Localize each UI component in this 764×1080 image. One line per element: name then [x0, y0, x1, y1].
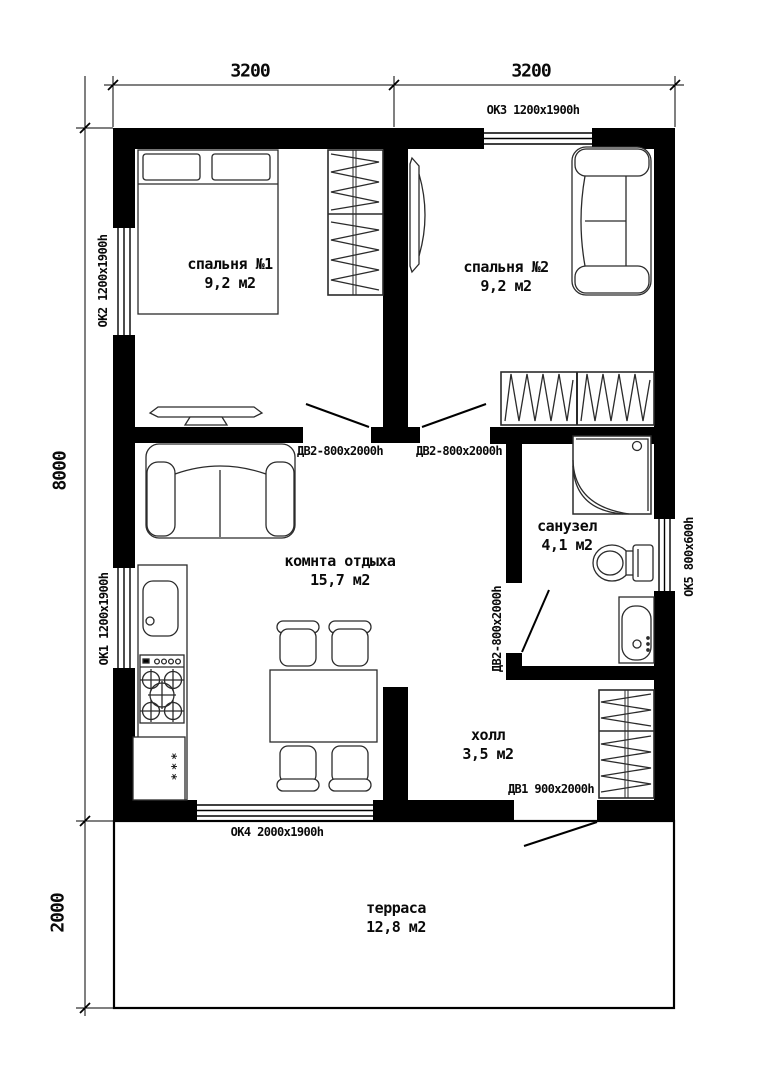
window-ok4 [197, 800, 373, 821]
room-area: 4,1 м2 [537, 536, 597, 555]
room-label-bathroom: санузел 4,1 м2 [537, 517, 597, 555]
room-label-lounge: комнта отдыха 15,7 м2 [285, 552, 396, 590]
door-label-entrance: ДВ1 900x2000h [508, 782, 594, 796]
room-name: терраса [366, 899, 426, 918]
window-label-ok4: ОК4 2000x1900h [231, 825, 324, 839]
toilet [593, 545, 653, 581]
floor-plan: 3200 3200 8000 2000 спальня №1 9,2 м2 сп… [0, 0, 764, 1080]
room-name: санузел [537, 517, 597, 536]
door-swing-bathroom [522, 590, 549, 652]
room-name: спальня №2 [463, 258, 548, 277]
door-label-bedroom2: ДВ2-800x2000h [416, 444, 502, 458]
room-name: холл [462, 726, 513, 745]
room-label-bedroom2: спальня №2 9,2 м2 [463, 258, 548, 296]
bathroom-sink [619, 597, 654, 663]
dining-table [270, 670, 377, 742]
window-ok3 [484, 128, 592, 149]
door-label-bathroom: ДВ2-800x2000h [490, 586, 504, 672]
shower [573, 436, 651, 514]
window-ok2 [113, 228, 135, 335]
wardrobe-hall [599, 690, 654, 798]
fridge-frost-symbol: *** [165, 753, 179, 784]
dimension-side-terrace: 2000 [48, 893, 69, 932]
room-area: 9,2 м2 [187, 274, 272, 293]
wardrobe-bedroom1 [328, 150, 383, 295]
tv-bedroom1 [150, 407, 262, 425]
door-swing-bedroom2 [422, 404, 486, 427]
stove [140, 655, 184, 723]
window-label-ok2: ОК2 1200x1900h [96, 235, 110, 328]
window-label-ok5: ОК5 800x600h [682, 517, 696, 597]
room-area: 15,7 м2 [285, 571, 396, 590]
door-opening-entrance [514, 800, 597, 821]
sofa-living [146, 444, 295, 538]
tv-bedroom2 [410, 158, 425, 272]
window-label-ok1: ОК1 1200x1900h [97, 573, 111, 666]
room-name: спальня №1 [187, 255, 272, 274]
window-ok5 [654, 519, 675, 591]
room-label-hall: холл 3,5 м2 [462, 726, 513, 764]
dining-chairs-top [277, 621, 371, 666]
sofa-bedroom2 [572, 147, 651, 295]
window-label-ok3: ОК3 1200x1900h [487, 103, 580, 117]
dimension-side-height: 8000 [50, 451, 71, 490]
room-name: комнта отдыха [285, 552, 396, 571]
door-swing-entrance [524, 822, 597, 846]
wardrobe-bedroom2 [501, 372, 654, 425]
room-area: 3,5 м2 [462, 745, 513, 764]
door-swing-bedroom1 [306, 404, 369, 427]
room-area: 12,8 м2 [366, 918, 426, 937]
kitchen-sink [143, 581, 178, 636]
room-label-terrace: терраса 12,8 м2 [366, 899, 426, 937]
door-label-bedroom1: ДВ2-800x2000h [297, 444, 383, 458]
room-label-bedroom1: спальня №1 9,2 м2 [187, 255, 272, 293]
dimension-top-left: 3200 [230, 61, 269, 82]
window-ok1 [113, 568, 135, 668]
dimension-top-right: 3200 [511, 61, 550, 82]
room-area: 9,2 м2 [463, 277, 548, 296]
dining-chairs-bottom [277, 746, 371, 791]
